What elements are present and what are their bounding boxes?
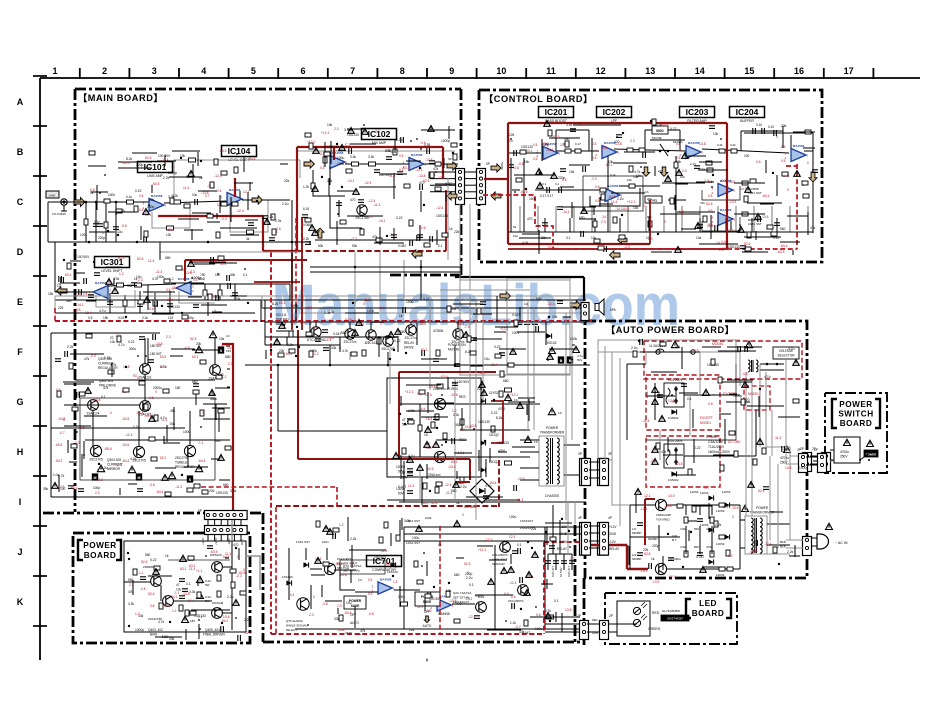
svg-text:11: 11: [546, 66, 556, 76]
svg-text:12: 12: [596, 66, 606, 76]
svg-text:0.01 B.T: 0.01 B.T: [567, 565, 571, 577]
svg-text:-17.4: -17.4: [668, 575, 676, 579]
svg-text:2SC27xx: 2SC27xx: [405, 336, 418, 340]
svg-text:13.8: 13.8: [692, 349, 699, 353]
svg-text:-1.1: -1.1: [198, 441, 204, 445]
svg-text:Q403, 402: Q403, 402: [148, 628, 163, 632]
svg-text:-0.7: -0.7: [704, 486, 710, 490]
svg-text:AUTO: AUTO: [423, 624, 432, 628]
svg-text:1u: 1u: [57, 284, 61, 288]
svg-text:-11.3: -11.3: [516, 498, 523, 502]
svg-text:-84.4: -84.4: [489, 481, 497, 485]
svg-text:10: 10: [496, 66, 506, 76]
svg-text:60k: 60k: [318, 244, 324, 248]
svg-text:0.5: 0.5: [533, 143, 538, 147]
svg-text:1k: 1k: [456, 501, 460, 505]
svg-text:1S: 1S: [558, 411, 562, 415]
svg-text:50V: 50V: [536, 297, 543, 301]
svg-text:-84.2: -84.2: [122, 459, 129, 463]
svg-text:0.17 0.17: 0.17 0.17: [540, 194, 554, 198]
svg-text:-63.5: -63.5: [675, 462, 683, 466]
svg-text:680: 680: [579, 216, 585, 220]
svg-text:63.1: 63.1: [403, 166, 410, 170]
svg-text:-13.3: -13.3: [652, 580, 659, 584]
svg-text:100p: 100p: [93, 486, 100, 490]
svg-text:680: 680: [503, 379, 509, 383]
svg-text:LINE AMP: LINE AMP: [147, 174, 163, 178]
svg-text:11K52: 11K52: [722, 490, 731, 494]
svg-text:8.2k: 8.2k: [478, 595, 485, 599]
svg-text:-12.4: -12.4: [721, 505, 729, 509]
svg-text:-12.4: -12.4: [478, 371, 486, 375]
svg-text:UC CND: UC CND: [728, 440, 741, 444]
svg-text:BA4558: BA4558: [95, 281, 107, 285]
svg-text:-13.8: -13.8: [469, 424, 477, 428]
svg-text:2SA1xxx: 2SA1xxx: [428, 473, 441, 477]
svg-text:8.2k: 8.2k: [496, 416, 503, 420]
svg-text:1 FB01: 1 FB01: [706, 435, 717, 439]
svg-text:-0.6: -0.6: [707, 402, 713, 406]
svg-text:4.7k: 4.7k: [342, 349, 348, 353]
svg-text:2.2k: 2.2k: [350, 537, 357, 541]
svg-text:2.2u: 2.2u: [466, 576, 473, 580]
svg-text:100n: 100n: [322, 540, 329, 544]
svg-text:2.3: 2.3: [682, 169, 687, 173]
svg-text:+12.1: +12.1: [456, 322, 465, 326]
svg-text:-12.4: -12.4: [244, 631, 252, 635]
svg-text:2P: 2P: [609, 614, 613, 618]
svg-text:0.22: 0.22: [104, 356, 111, 360]
svg-text:100k: 100k: [529, 197, 537, 201]
svg-text:-0.7: -0.7: [59, 431, 65, 435]
svg-text:4700u: 4700u: [840, 450, 849, 454]
svg-text:10k: 10k: [633, 206, 639, 210]
svg-text:POWER ON: POWER ON: [448, 343, 466, 347]
svg-text:100k: 100k: [425, 516, 432, 520]
svg-text:WHILE SIGNAL: WHILE SIGNAL: [286, 624, 308, 628]
svg-text:100u: 100u: [509, 515, 517, 519]
svg-text:63.1: 63.1: [192, 355, 198, 359]
svg-text:RED: RED: [652, 611, 660, 615]
svg-text:2.3: 2.3: [337, 604, 342, 608]
svg-text:-63.5: -63.5: [520, 190, 528, 194]
svg-text:11.4: 11.4: [225, 552, 231, 556]
svg-text:100k: 100k: [398, 595, 405, 599]
svg-text:DRIVE: DRIVE: [404, 346, 414, 350]
svg-text:2.2u: 2.2u: [617, 197, 624, 201]
svg-text:560: 560: [145, 553, 151, 557]
svg-text:100k: 100k: [570, 337, 578, 341]
svg-text:-2.3: -2.3: [90, 354, 96, 358]
svg-text:BOARD: BOARD: [84, 551, 117, 560]
svg-text:-12.4: -12.4: [436, 206, 444, 210]
svg-text:C: C: [17, 197, 24, 207]
svg-text:52.6: 52.6: [706, 202, 713, 206]
svg-text:IC201: IC201: [545, 107, 568, 117]
svg-text:3.3k: 3.3k: [189, 590, 196, 594]
svg-text:100: 100: [744, 154, 750, 158]
svg-text:8.2k: 8.2k: [272, 302, 279, 306]
svg-text:10u: 10u: [136, 275, 142, 279]
svg-text:4.7k: 4.7k: [130, 457, 137, 461]
svg-text:SELECTOR: SELECTOR: [777, 354, 795, 358]
svg-text:EXCEPT: EXCEPT: [700, 416, 713, 420]
svg-text:+12.1: +12.1: [500, 327, 509, 331]
svg-text:BA4558: BA4558: [688, 141, 700, 145]
svg-text:220k: 220k: [645, 391, 649, 398]
svg-text:2.2k: 2.2k: [303, 237, 309, 241]
svg-text:52.6: 52.6: [644, 552, 651, 556]
svg-text:220p: 220p: [98, 236, 105, 240]
svg-text:4.2k: 4.2k: [730, 143, 736, 147]
svg-text:-84.2: -84.2: [55, 459, 62, 463]
svg-text:Q405, 404: Q405, 404: [205, 628, 220, 632]
svg-text:-13.8: -13.8: [418, 174, 426, 178]
svg-text:14: 14: [695, 66, 705, 76]
svg-text:220p: 220p: [136, 163, 144, 167]
svg-text:GD 111: GD 111: [276, 313, 287, 317]
svg-text:470: 470: [350, 198, 356, 202]
svg-text:11K52: 11K52: [716, 509, 725, 513]
svg-text:10k: 10k: [627, 178, 632, 182]
svg-text:SENSOR: SENSOR: [492, 562, 506, 566]
svg-text:250V: 250V: [840, 455, 848, 459]
svg-text:2.2u: 2.2u: [460, 485, 467, 489]
svg-text:11DQ2: 11DQ2: [489, 460, 499, 464]
svg-text:TUBELE: TUBELE: [175, 461, 187, 465]
svg-text:2P: 2P: [577, 614, 581, 618]
svg-text:52.6: 52.6: [137, 257, 144, 261]
svg-text:MOD: MOD: [656, 129, 664, 133]
svg-text:0.5: 0.5: [83, 292, 88, 296]
svg-text:10u: 10u: [110, 340, 116, 344]
svg-text:3P: 3P: [608, 452, 612, 456]
svg-text:2SA1174: 2SA1174: [87, 411, 100, 415]
svg-text:-11.3: -11.3: [373, 203, 380, 207]
svg-text:-65.5: -65.5: [55, 443, 62, 447]
svg-text:22k: 22k: [454, 230, 460, 234]
svg-text:-0.7: -0.7: [364, 341, 370, 345]
svg-text:0.4: 0.4: [290, 593, 295, 597]
svg-text:13.8: 13.8: [785, 466, 792, 470]
svg-text:100k: 100k: [408, 409, 416, 413]
svg-text:1SS133: 1SS133: [436, 214, 448, 218]
svg-text:-12.4: -12.4: [430, 501, 438, 505]
svg-text:RELAY: RELAY: [609, 547, 620, 551]
svg-text:3.1: 3.1: [566, 236, 571, 240]
svg-text:22k: 22k: [279, 349, 285, 353]
svg-text:1k: 1k: [449, 227, 453, 231]
svg-text:-2.3: -2.3: [236, 574, 242, 578]
svg-text:1.2: 1.2: [172, 609, 177, 613]
svg-text:F: F: [17, 347, 23, 357]
svg-text:734: 734: [114, 277, 120, 281]
svg-text:M: M: [138, 476, 141, 480]
svg-text:-12.9: -12.9: [640, 507, 647, 511]
svg-text:1k: 1k: [651, 557, 655, 561]
svg-text:22k: 22k: [531, 527, 537, 531]
svg-text:220p: 220p: [465, 572, 473, 576]
svg-text:-84.4: -84.4: [136, 411, 144, 415]
svg-text:45k: 45k: [170, 409, 176, 413]
svg-text:4.7k: 4.7k: [522, 241, 529, 245]
svg-text:3.3k: 3.3k: [404, 519, 411, 523]
svg-text:1600mAL/250V: 1600mAL/250V: [708, 450, 731, 454]
svg-text:MUSIC: MUSIC: [673, 140, 684, 144]
svg-text:IC101: IC101: [144, 162, 167, 172]
svg-text:2.3: 2.3: [75, 441, 80, 445]
svg-text:0.5: 0.5: [595, 199, 600, 203]
svg-text:MOVIE: MOVIE: [652, 136, 662, 140]
svg-text:MIRROR: MIRROR: [107, 467, 121, 471]
svg-text:680: 680: [454, 573, 460, 577]
svg-text:33k: 33k: [552, 315, 558, 319]
svg-text:470: 470: [233, 543, 239, 547]
svg-text:GN/3T4/GBT: GN/3T4/GBT: [667, 617, 684, 621]
svg-text:0: 0: [237, 555, 239, 559]
svg-text:-14.1: -14.1: [715, 241, 723, 245]
svg-text:2SC27xx: 2SC27xx: [344, 340, 357, 344]
svg-text:4.7u: 4.7u: [788, 347, 795, 351]
svg-text:9: 9: [449, 66, 454, 76]
svg-text:-0.8: -0.8: [140, 587, 146, 591]
svg-text:CHASSIS: CHASSIS: [545, 494, 559, 498]
svg-text:0.6: 0.6: [350, 561, 355, 565]
svg-text:0.01 250V: 0.01 250V: [668, 378, 683, 382]
svg-text:B: B: [569, 359, 572, 363]
svg-text:52: 52: [513, 225, 517, 229]
svg-text:-13.8: -13.8: [664, 504, 672, 508]
svg-text:4P: 4P: [608, 516, 612, 520]
svg-text:-13.8: -13.8: [425, 158, 433, 162]
svg-text:-63.5: -63.5: [777, 250, 785, 254]
svg-text:2.2u: 2.2u: [227, 595, 234, 599]
svg-text:11DQ2: 11DQ2: [489, 433, 499, 437]
svg-text:2SC2785: 2SC2785: [355, 216, 369, 220]
svg-text:47k: 47k: [433, 167, 439, 171]
svg-text:2P: 2P: [814, 448, 818, 452]
svg-text:-13.3: -13.3: [729, 200, 736, 204]
svg-text:47k: 47k: [810, 226, 816, 230]
svg-text:2.2k: 2.2k: [67, 345, 74, 349]
svg-text:0.066: 0.066: [303, 223, 311, 227]
svg-text:680: 680: [218, 373, 224, 377]
svg-text:8.2k: 8.2k: [465, 350, 472, 354]
svg-text:-14.1: -14.1: [347, 179, 355, 183]
svg-text:47k: 47k: [360, 629, 366, 633]
svg-text:47k: 47k: [372, 235, 378, 239]
svg-text:0: 0: [63, 418, 65, 422]
svg-text:-12.4: -12.4: [547, 302, 555, 306]
svg-text:4.2k: 4.2k: [717, 143, 723, 147]
svg-text:-0.7: -0.7: [569, 557, 575, 561]
svg-text:BLB: BLB: [780, 540, 786, 544]
svg-text:560: 560: [223, 483, 229, 487]
svg-text:1.2: 1.2: [339, 523, 344, 527]
svg-text:G: G: [16, 397, 23, 407]
svg-text:6PA: 6PA: [610, 308, 617, 312]
svg-text:10u: 10u: [176, 588, 182, 592]
svg-text:50k: 50k: [352, 244, 358, 248]
svg-text:10u: 10u: [192, 193, 198, 197]
svg-text:0.22: 0.22: [394, 339, 401, 343]
svg-text:BA4558: BA4558: [607, 184, 619, 188]
svg-text:MODEL: MODEL: [712, 342, 724, 346]
svg-text:4.7u: 4.7u: [764, 375, 771, 379]
svg-text:52.6: 52.6: [141, 560, 148, 564]
svg-text:-12.3: -12.3: [485, 538, 492, 542]
svg-text:6.15: 6.15: [303, 207, 309, 211]
svg-text:2.2k: 2.2k: [787, 550, 794, 554]
svg-text:11K52: 11K52: [716, 542, 725, 546]
svg-text:GREEN: GREEN: [648, 627, 661, 631]
svg-text:2TA1345TA: 2TA1345TA: [492, 553, 508, 557]
svg-text:-16.7: -16.7: [425, 446, 433, 450]
svg-text:4P: 4P: [578, 516, 582, 520]
svg-text:-63.5: -63.5: [117, 256, 125, 260]
svg-text:1SS133: 1SS133: [497, 441, 509, 445]
svg-text:RED: RED: [592, 618, 598, 622]
svg-text:22.6: 22.6: [420, 322, 426, 326]
svg-text:2.2u: 2.2u: [396, 138, 403, 142]
svg-text:-13.8: -13.8: [517, 477, 525, 481]
svg-text:4.5k: 4.5k: [680, 527, 686, 531]
svg-text:10u: 10u: [94, 220, 100, 224]
svg-text:11.4: 11.4: [707, 224, 713, 228]
svg-text:6P: 6P: [198, 509, 202, 513]
svg-text:0.01 250V: 0.01 250V: [668, 439, 683, 443]
svg-text:13.8: 13.8: [58, 485, 65, 489]
svg-text:1000p: 1000p: [168, 171, 177, 175]
svg-text:13.8: 13.8: [565, 608, 572, 612]
svg-text:63.1: 63.1: [422, 501, 429, 505]
svg-text:-12.4: -12.4: [445, 491, 453, 495]
svg-text:2.2k: 2.2k: [453, 413, 459, 417]
svg-text:-11.3: -11.3: [155, 270, 162, 274]
svg-text:100u: 100u: [147, 205, 155, 209]
svg-text:0: 0: [664, 220, 666, 224]
svg-text:11.4: 11.4: [183, 186, 189, 190]
svg-text:-11.3: -11.3: [774, 436, 781, 440]
svg-text:-14.1: -14.1: [415, 168, 423, 172]
svg-text:1.2: 1.2: [135, 612, 140, 616]
svg-text:-12.4: -12.4: [84, 311, 92, 315]
svg-text:2.2u: 2.2u: [101, 466, 108, 470]
svg-text:47k: 47k: [661, 450, 667, 454]
svg-text:2SC2785: 2SC2785: [381, 347, 395, 351]
svg-text:+12.1: +12.1: [627, 200, 636, 204]
svg-text:TRANSFORMER: TRANSFORMER: [540, 431, 565, 435]
svg-text:10u: 10u: [513, 234, 518, 238]
svg-text:560: 560: [564, 137, 570, 141]
svg-text:0.17: 0.17: [575, 142, 581, 146]
svg-text:LED: LED: [699, 599, 717, 608]
svg-text:12.1: 12.1: [509, 535, 516, 539]
svg-text:33k: 33k: [235, 297, 241, 301]
svg-text:IC204: IC204: [736, 107, 759, 117]
svg-text:2P: 2P: [797, 448, 801, 452]
svg-text:1000p: 1000p: [799, 466, 808, 470]
svg-text:-63.5: -63.5: [122, 417, 129, 421]
svg-text:4.7u: 4.7u: [160, 365, 167, 369]
svg-text:19k: 19k: [103, 316, 109, 320]
svg-text:2.3: 2.3: [166, 335, 171, 339]
svg-text:47k: 47k: [519, 630, 525, 634]
svg-text:47: 47: [402, 418, 406, 422]
svg-text:63.1: 63.1: [386, 562, 393, 566]
svg-text:E: E: [17, 297, 23, 307]
svg-text:52.6: 52.6: [148, 592, 155, 596]
svg-text:0.1: 0.1: [554, 599, 559, 603]
svg-text:0.6: 0.6: [217, 189, 222, 193]
svg-text:15k: 15k: [48, 292, 54, 296]
svg-text:~ AC IN: ~ AC IN: [835, 541, 848, 545]
svg-text:-12V: -12V: [609, 540, 617, 544]
svg-text:-0.6: -0.6: [121, 224, 127, 228]
svg-text:680: 680: [225, 355, 231, 359]
svg-text:-0.7: -0.7: [306, 306, 312, 310]
svg-text:-14.1: -14.1: [739, 187, 747, 191]
svg-text:-2.3: -2.3: [650, 459, 656, 463]
svg-text:10u: 10u: [117, 230, 123, 234]
svg-text:-0.7: -0.7: [671, 400, 677, 404]
svg-text:+1.1: +1.1: [196, 569, 203, 573]
svg-text:220p: 220p: [542, 143, 550, 147]
svg-text:IC203: IC203: [686, 107, 709, 117]
svg-text:1SS133: 1SS133: [728, 245, 740, 249]
svg-text:10k: 10k: [636, 174, 642, 178]
svg-text:BA4558: BA4558: [178, 277, 190, 281]
svg-text:22k: 22k: [284, 179, 290, 183]
svg-text:63.1: 63.1: [180, 567, 187, 571]
svg-text:1SS133: 1SS133: [327, 145, 339, 149]
svg-text:63.1: 63.1: [65, 273, 72, 277]
svg-text:0.5: 0.5: [368, 578, 373, 582]
svg-text:2.3: 2.3: [77, 293, 82, 297]
svg-text:0.5: 0.5: [592, 156, 597, 160]
svg-text:1S: 1S: [534, 440, 538, 444]
svg-text:2.3: 2.3: [228, 362, 233, 366]
svg-text:H: H: [17, 447, 24, 457]
svg-text:IC202: IC202: [603, 107, 626, 117]
svg-text:0: 0: [787, 188, 789, 192]
svg-text:-63.5: -63.5: [608, 195, 616, 199]
svg-text:POWER: POWER: [756, 506, 769, 510]
svg-text:1SS120: 1SS120: [282, 575, 293, 579]
svg-text:1000p: 1000p: [733, 394, 742, 398]
svg-text:FINAL DRIVER: FINAL DRIVER: [203, 633, 226, 637]
svg-text:-14.1: -14.1: [170, 595, 178, 599]
svg-text:2.3: 2.3: [648, 237, 653, 241]
svg-text:1.2: 1.2: [380, 306, 385, 310]
svg-text:1N5402: 1N5402: [668, 416, 679, 420]
svg-text:17: 17: [844, 66, 854, 76]
svg-text:1k: 1k: [438, 543, 442, 547]
svg-text:+12.1: +12.1: [510, 393, 519, 397]
svg-text:10.0: 10.0: [668, 494, 675, 498]
svg-text:100 50V: 100 50V: [429, 597, 442, 601]
svg-text:3.3k: 3.3k: [128, 602, 134, 606]
svg-text:-2.3: -2.3: [720, 179, 726, 183]
svg-text:0.1: 0.1: [687, 397, 692, 401]
svg-text:【AUTO POWER BOARD】: 【AUTO POWER BOARD】: [606, 325, 735, 335]
svg-text:1SS133: 1SS133: [194, 614, 206, 618]
svg-text:-14.1: -14.1: [546, 148, 554, 152]
svg-text:8: 8: [400, 66, 405, 76]
svg-text:0.10: 0.10: [756, 123, 762, 127]
svg-text:-12.4: -12.4: [509, 581, 517, 585]
svg-text:0.1: 0.1: [517, 543, 522, 547]
